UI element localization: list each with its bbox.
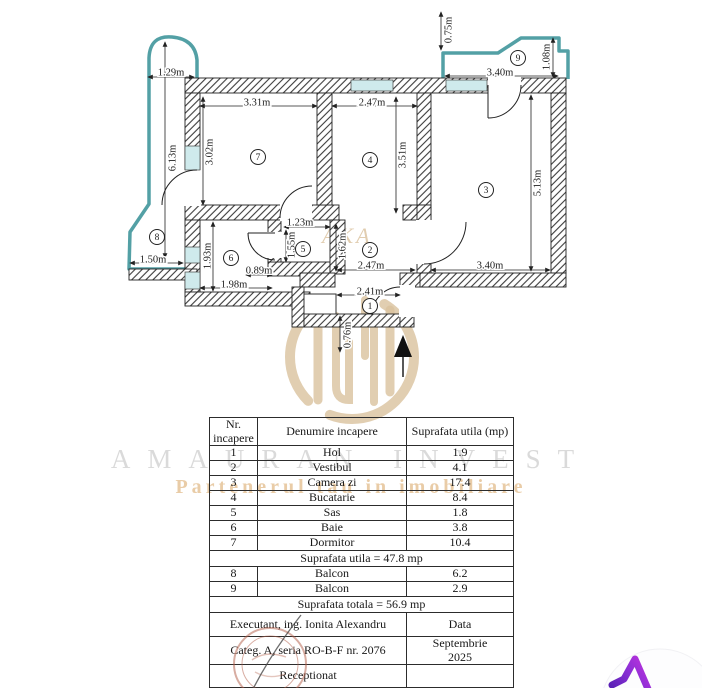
dimension-label: 3.02m	[205, 139, 216, 166]
room-number: 7	[251, 150, 266, 165]
svg-text:6: 6	[229, 254, 234, 264]
categ-row: Categ. A, seria RO-B-F nr. 2076 Septembr…	[210, 637, 514, 665]
svg-text:5: 5	[301, 245, 306, 255]
dimension-label: 1.08m	[542, 44, 553, 71]
dimension-label: 2.41m	[357, 287, 384, 298]
dimension-label: 3.40m	[487, 68, 514, 79]
closet-outline	[304, 294, 336, 314]
header-suprafata: Suprafata utila (mp)	[407, 418, 514, 446]
date-cell: Septembrie 2025	[407, 637, 514, 665]
svg-text:7: 7	[256, 153, 261, 163]
table-row: 1 Hol 1.9	[210, 446, 514, 461]
dimension-label: 6.13m	[168, 145, 179, 172]
dimension-label: 5.13m	[533, 170, 544, 197]
table-row: 4 Bucatarie 8.4	[210, 491, 514, 506]
dimension-label: 1.29m	[158, 68, 185, 79]
data-label-cell: Data	[407, 613, 514, 637]
total-row: Suprafata totala = 56.9 mp	[210, 597, 514, 613]
table-row: 7 Dormitor 10.4	[210, 536, 514, 551]
receptionat-cell: Receptionat	[210, 665, 407, 688]
room-number: 1	[363, 299, 378, 314]
receptionat-row: Receptionat	[210, 665, 514, 688]
room-number: 5	[296, 242, 311, 257]
dimension-label: 0.89m	[246, 266, 273, 277]
dimension-label: 1.55m	[287, 232, 298, 259]
room-number: 8	[150, 230, 165, 245]
dimension-label: 0.75m	[444, 17, 455, 44]
svg-text:8: 8	[155, 233, 160, 243]
executant-cell: Executant, ing. Ionita Alexandru	[210, 613, 407, 637]
table-row: 9 Balcon 2.9	[210, 582, 514, 597]
dimension-label: 1.23m	[287, 218, 314, 229]
dimension-label: 0.76m	[343, 322, 354, 349]
categ-cell: Categ. A, seria RO-B-F nr. 2076	[210, 637, 407, 665]
svg-text:4: 4	[368, 156, 373, 166]
table-row: 5 Sas 1.8	[210, 506, 514, 521]
table-row: 2 Vestibul 4.1	[210, 461, 514, 476]
room-number: 9	[511, 51, 526, 66]
table-row: 6 Baie 3.8	[210, 521, 514, 536]
svg-text:9: 9	[516, 54, 521, 64]
dimension-label: 3.51m	[398, 142, 409, 169]
room-areas-table: Nr. incapere Denumire incapere Suprafata…	[209, 417, 513, 688]
room-number: 3	[479, 183, 494, 198]
dimension-label: 2.47m	[358, 261, 385, 272]
dimension-label: 3.31m	[244, 98, 271, 109]
header-denumire: Denumire incapere	[258, 418, 407, 446]
dimension-label: 1.93m	[203, 243, 214, 270]
table-header-row: Nr. incapere Denumire incapere Suprafata…	[210, 418, 514, 446]
table-row: 3 Camera zi 17.4	[210, 476, 514, 491]
dimension-label: 3.40m	[477, 261, 504, 272]
executant-row: Executant, ing. Ionita Alexandru Data	[210, 613, 514, 637]
table-row: 8 Balcon 6.2	[210, 567, 514, 582]
dimension-label: 1.50m	[140, 255, 167, 266]
dimension-label: 2.47m	[359, 98, 386, 109]
room-number: 2	[363, 243, 378, 258]
dimension-label: 1.98m	[221, 280, 248, 291]
svg-text:2: 2	[368, 246, 373, 256]
svg-text:1: 1	[368, 302, 373, 312]
room-number: 4	[363, 153, 378, 168]
header-nr: Nr. incapere	[210, 418, 258, 446]
subtotal-row: Suprafata utila = 47.8 mp	[210, 551, 514, 567]
dimension-label: 1.62m	[338, 233, 349, 260]
scanned-floorplan-page: { "floorplan": { "dimension_labels": [ {…	[0, 0, 702, 688]
room-number: 6	[224, 251, 239, 266]
svg-text:3: 3	[484, 186, 489, 196]
